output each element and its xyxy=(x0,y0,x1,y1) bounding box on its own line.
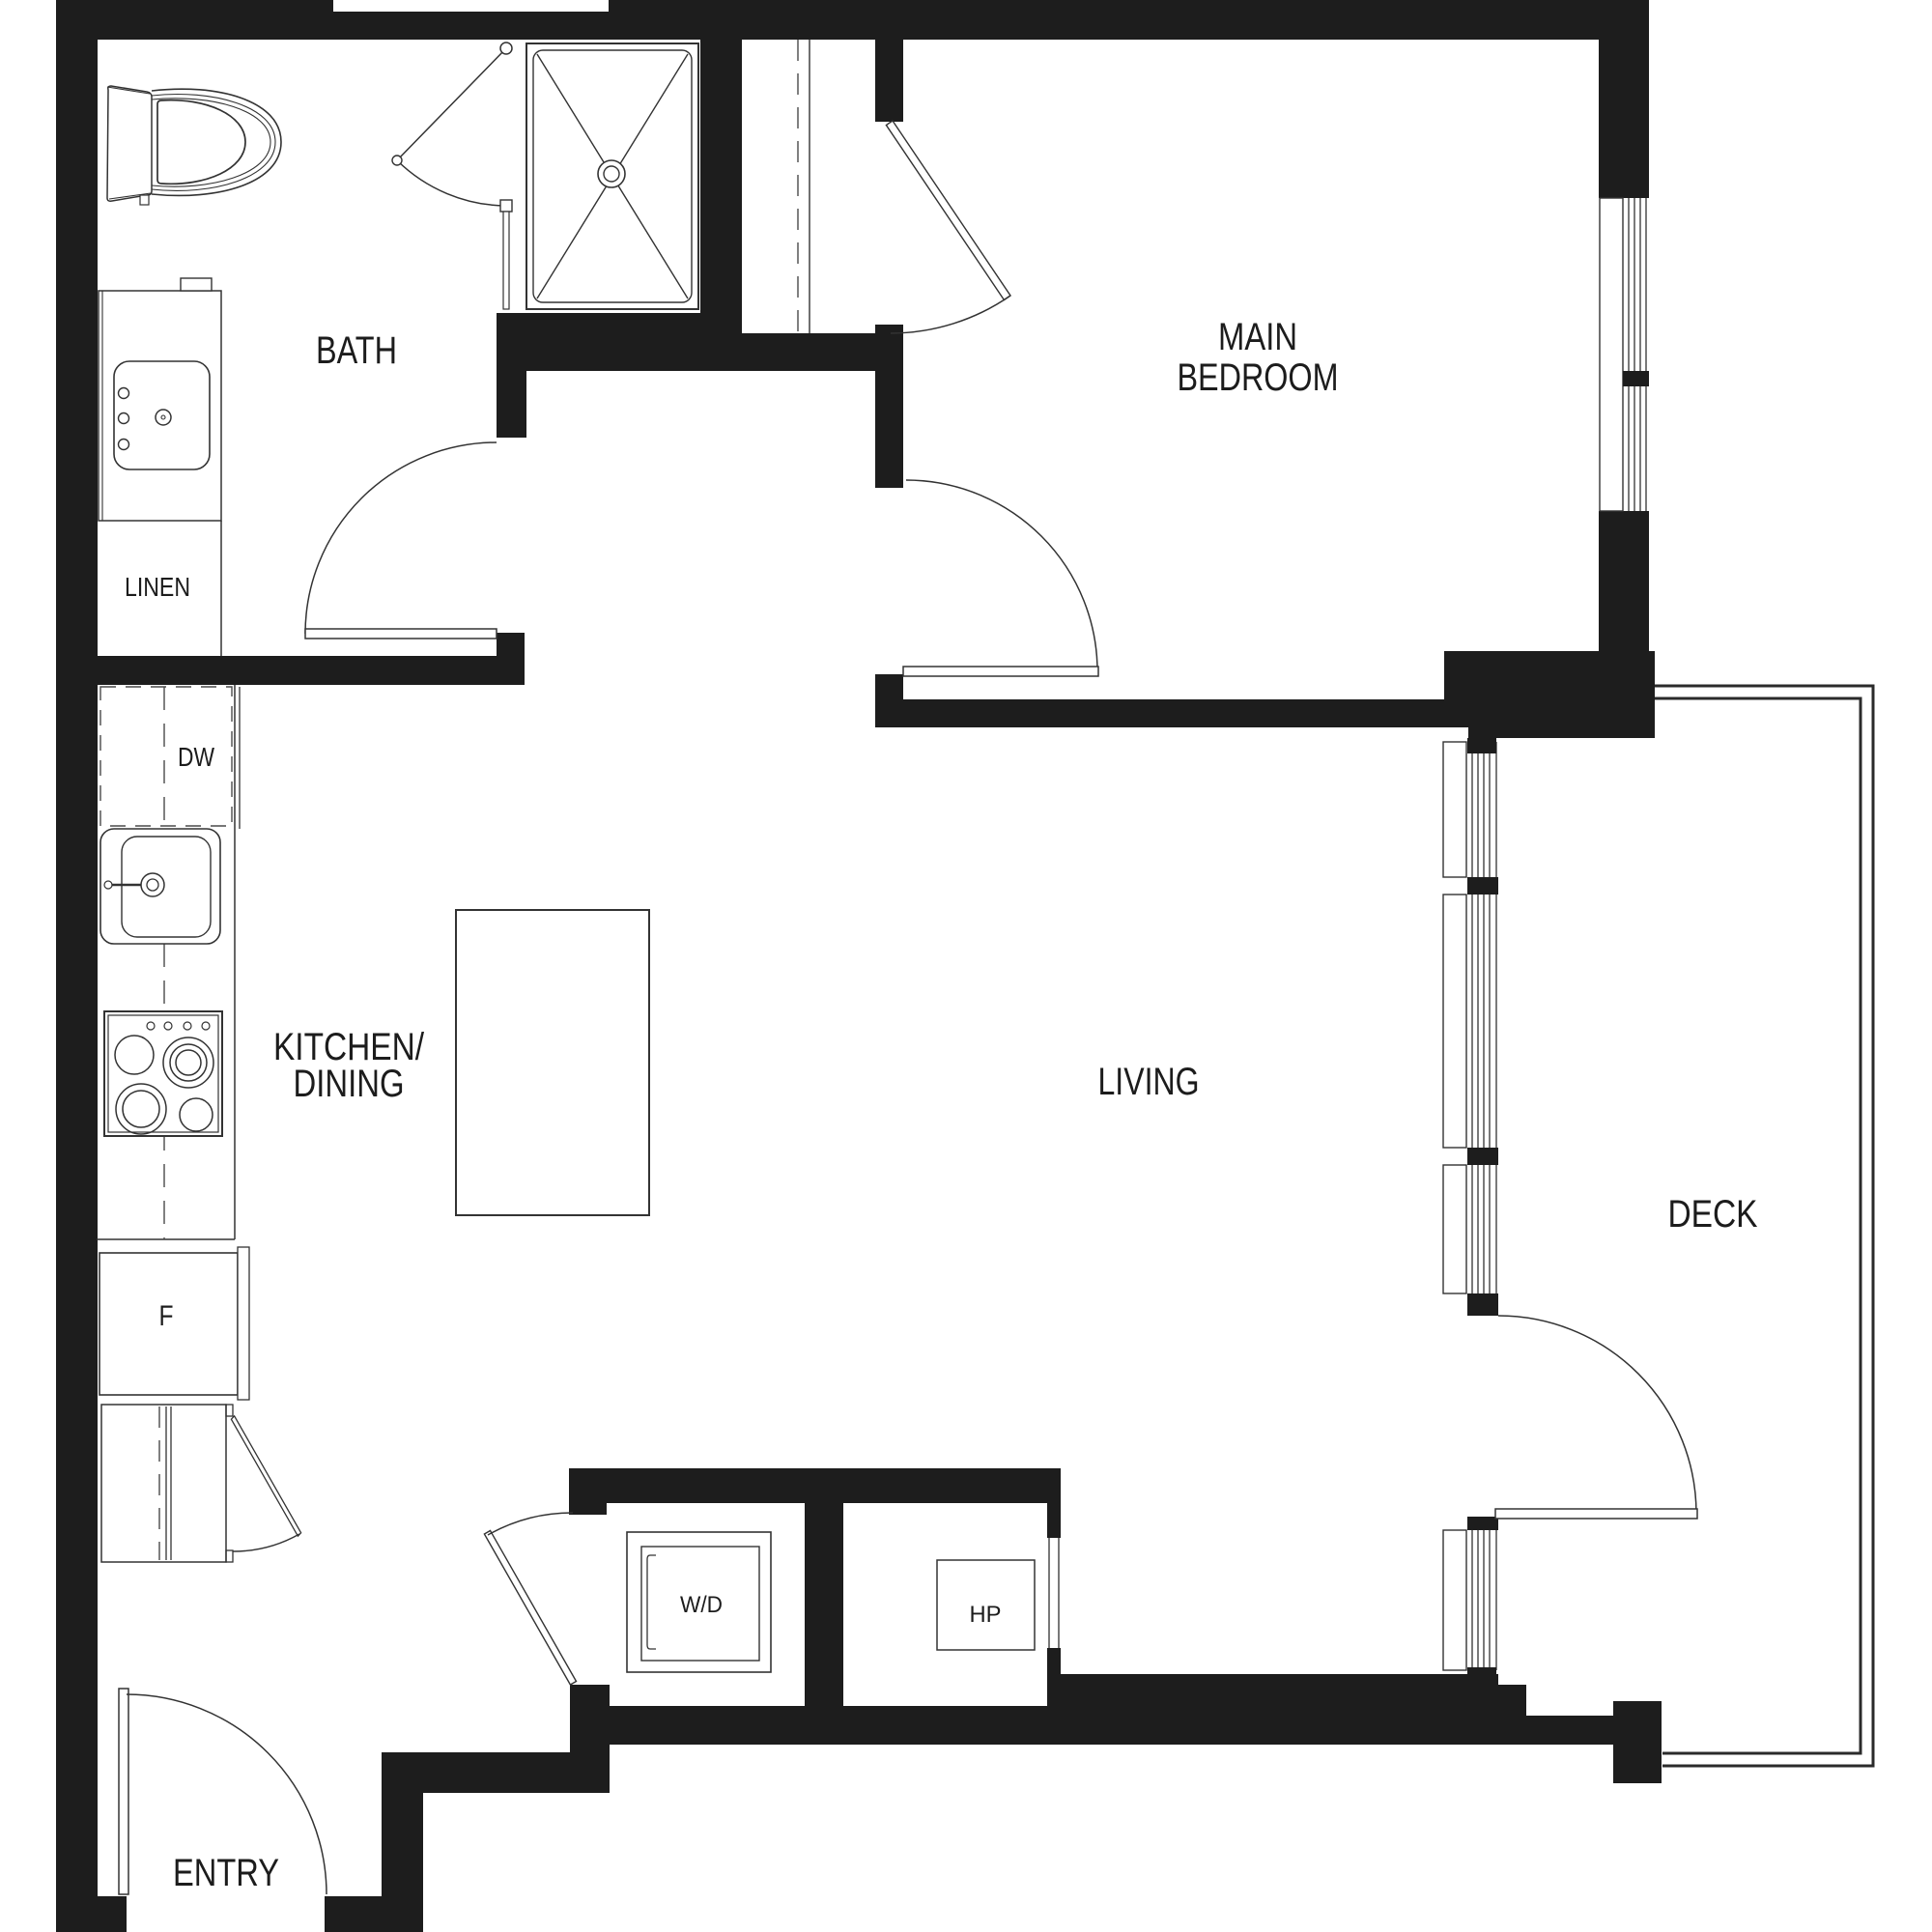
svg-text:HP: HP xyxy=(970,1602,1002,1628)
svg-text:DW: DW xyxy=(178,742,214,772)
svg-text:ENTRY: ENTRY xyxy=(173,1852,279,1894)
svg-text:MAIN: MAIN xyxy=(1218,316,1297,358)
svg-text:BATH: BATH xyxy=(316,329,397,372)
svg-text:DINING: DINING xyxy=(294,1063,405,1105)
svg-text:LINEN: LINEN xyxy=(125,572,190,602)
svg-text:BEDROOM: BEDROOM xyxy=(1178,356,1339,399)
svg-text:F: F xyxy=(159,1300,174,1332)
svg-text:DECK: DECK xyxy=(1668,1193,1758,1236)
svg-text:LIVING: LIVING xyxy=(1098,1061,1200,1103)
svg-text:W/D: W/D xyxy=(680,1592,723,1618)
